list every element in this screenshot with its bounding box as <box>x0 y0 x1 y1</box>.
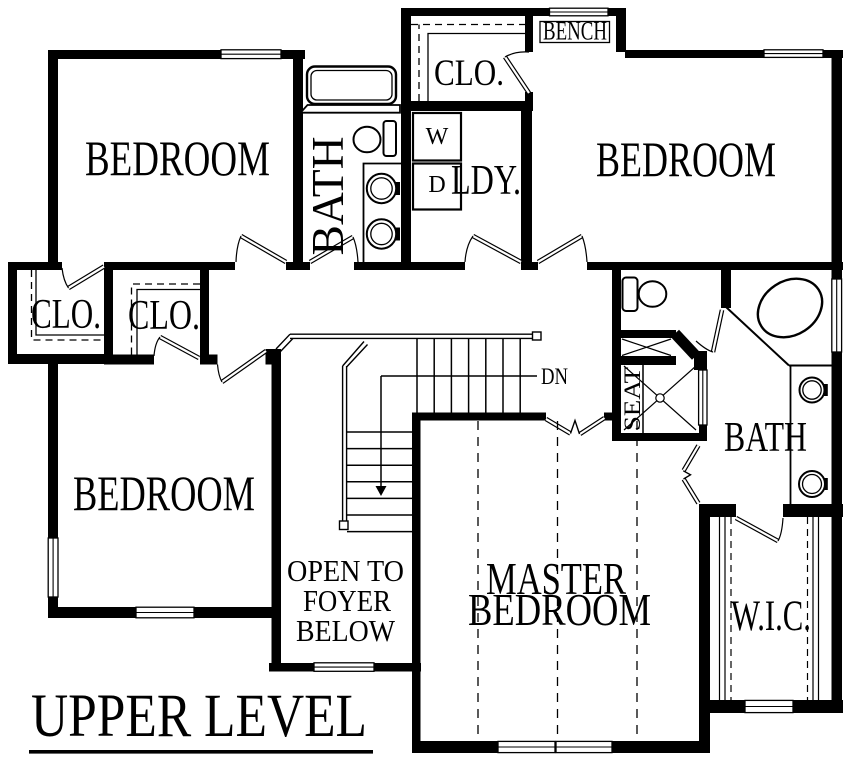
svg-text:UPPER LEVEL: UPPER LEVEL <box>31 683 367 750</box>
svg-text:CLO.: CLO. <box>31 292 101 338</box>
svg-text:BEDROOM: BEDROOM <box>85 130 270 186</box>
svg-text:BELOW: BELOW <box>296 613 396 648</box>
svg-text:BEDROOM: BEDROOM <box>596 131 776 187</box>
svg-text:BEDROOM: BEDROOM <box>73 465 255 521</box>
svg-text:CLO.: CLO. <box>128 293 200 339</box>
svg-text:D: D <box>428 172 445 198</box>
svg-text:SEAT: SEAT <box>620 367 645 431</box>
svg-text:LDY.: LDY. <box>451 158 521 204</box>
svg-text:BATH: BATH <box>724 415 807 461</box>
svg-text:BATH: BATH <box>303 137 353 256</box>
svg-text:BEDROOM: BEDROOM <box>468 584 651 635</box>
svg-text:W.I.C.: W.I.C. <box>731 593 811 640</box>
svg-text:DN: DN <box>541 364 568 389</box>
svg-text:BENCH: BENCH <box>543 17 607 46</box>
svg-text:W: W <box>426 124 449 150</box>
svg-text:CLO.: CLO. <box>434 53 504 94</box>
